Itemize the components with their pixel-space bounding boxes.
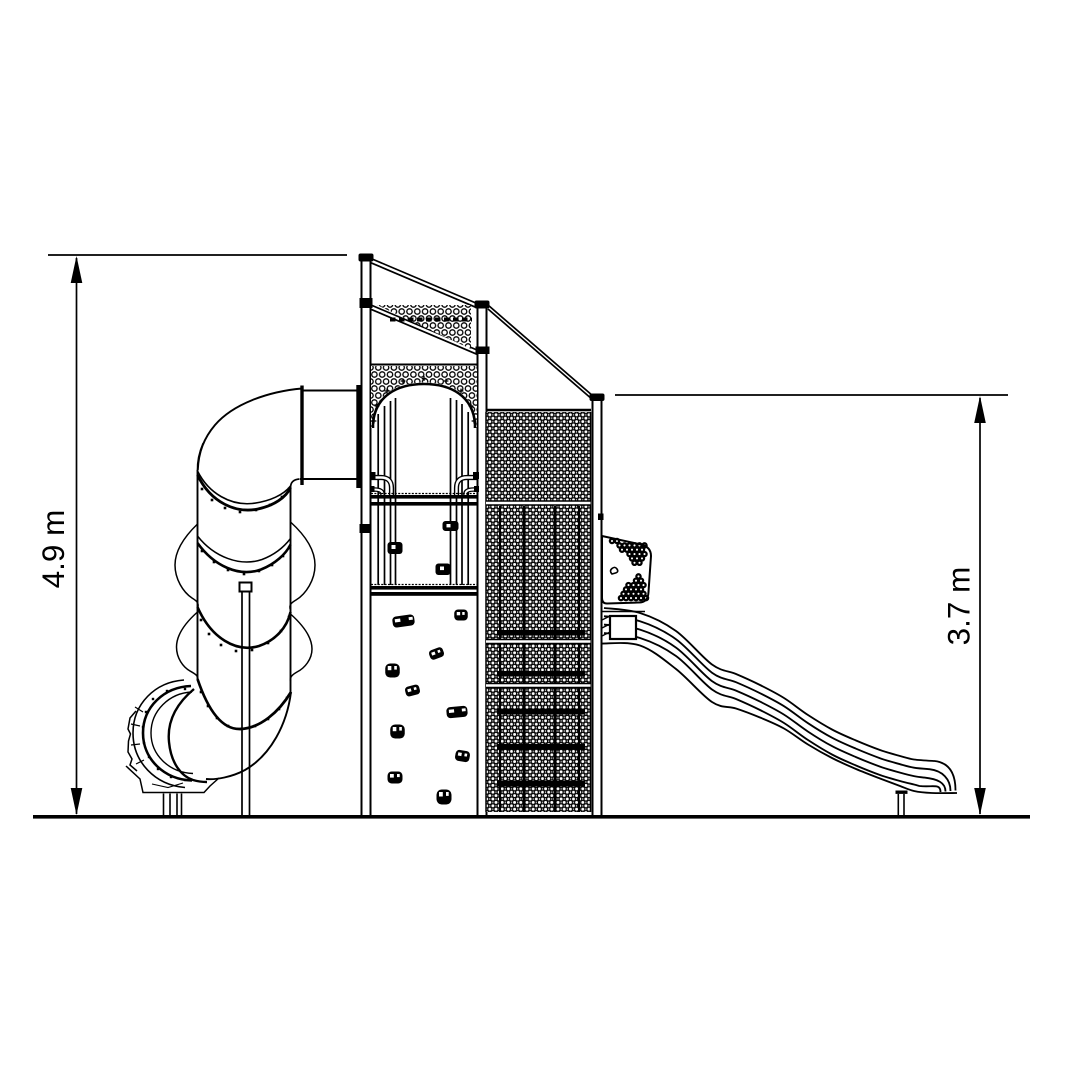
svg-text:4.9 m: 4.9 m [35, 510, 71, 589]
svg-text:3.7 m: 3.7 m [940, 567, 976, 646]
